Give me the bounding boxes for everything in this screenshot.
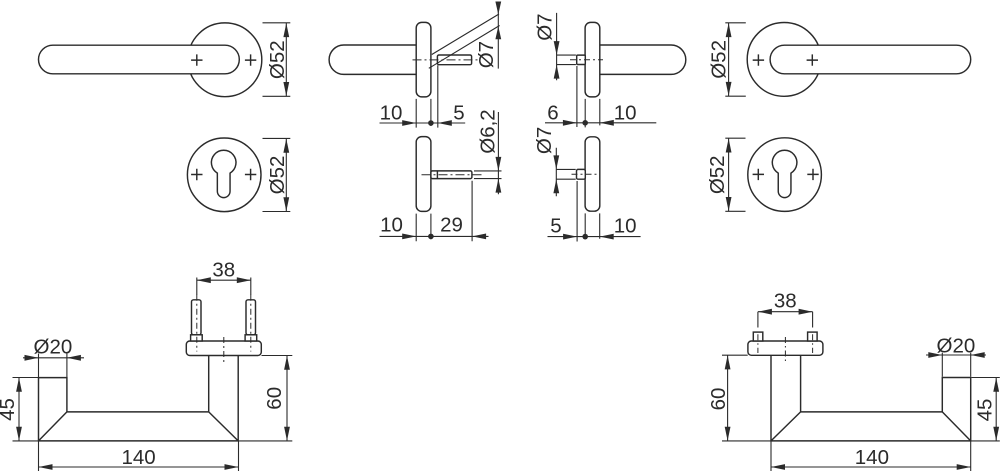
- svg-text:Ø52: Ø52: [266, 40, 289, 79]
- svg-text:10: 10: [614, 102, 637, 125]
- svg-text:Ø20: Ø20: [937, 334, 976, 357]
- svg-text:Ø52: Ø52: [266, 156, 289, 195]
- svg-text:38: 38: [774, 290, 797, 313]
- svg-text:Ø52: Ø52: [706, 155, 729, 194]
- svg-text:140: 140: [121, 446, 155, 469]
- svg-text:60: 60: [707, 388, 730, 411]
- svg-text:10: 10: [380, 213, 403, 236]
- svg-text:38: 38: [212, 259, 235, 282]
- svg-text:5: 5: [453, 101, 464, 124]
- svg-text:Ø7: Ø7: [533, 127, 556, 154]
- svg-text:10: 10: [614, 215, 637, 238]
- svg-text:140: 140: [855, 446, 889, 469]
- svg-text:Ø7: Ø7: [475, 41, 498, 68]
- svg-text:60: 60: [263, 387, 286, 410]
- svg-text:5: 5: [550, 215, 561, 238]
- svg-text:Ø20: Ø20: [34, 336, 73, 359]
- svg-text:29: 29: [440, 213, 463, 236]
- svg-text:Ø7: Ø7: [534, 13, 557, 40]
- svg-text:45: 45: [0, 398, 19, 421]
- svg-text:6: 6: [547, 102, 558, 125]
- svg-text:45: 45: [974, 399, 997, 422]
- svg-text:Ø52: Ø52: [708, 40, 731, 79]
- svg-text:Ø6,2: Ø6,2: [476, 109, 499, 153]
- svg-text:10: 10: [380, 101, 403, 124]
